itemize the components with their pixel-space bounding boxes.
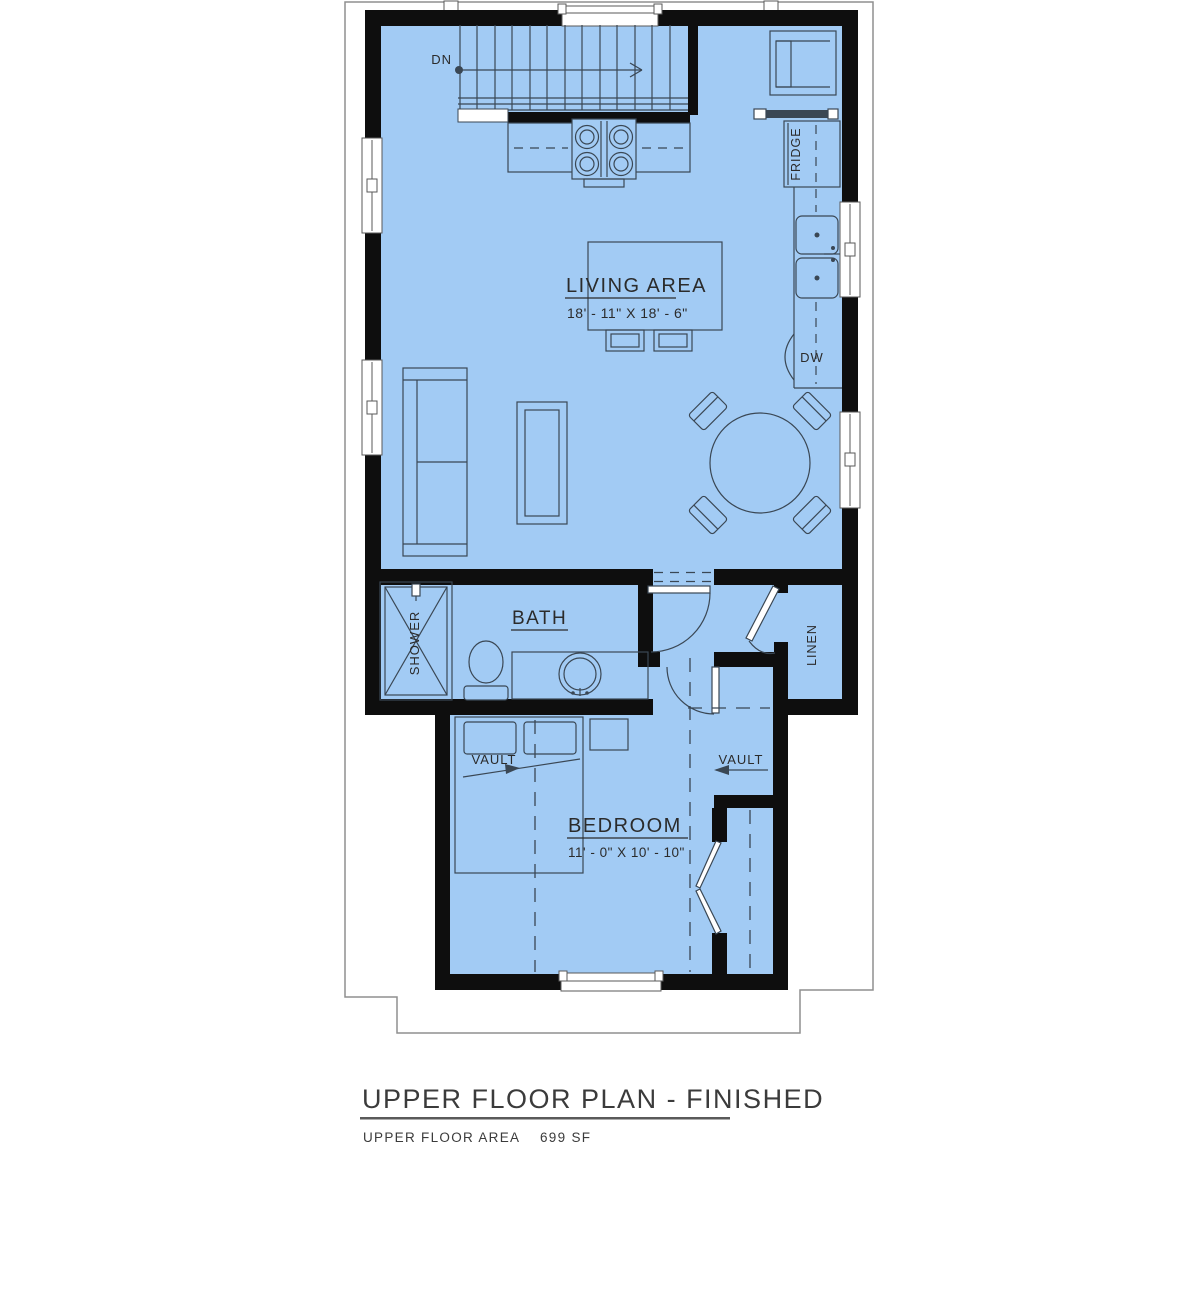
bedroom-label: BEDROOM [568,815,682,837]
bath-label: BATH [512,608,567,629]
dining-set [688,391,832,535]
vault-left-label: VAULT [472,752,517,767]
counter-half-wall [754,109,838,119]
floor-plan-canvas: DN [0,0,1200,1308]
stair-landing [458,109,508,122]
dining-table [710,413,810,513]
refrigerator: FRIDGE [784,121,840,187]
title-block: UPPER FLOOR PLAN - FINISHED UPPER FLOOR … [360,1084,824,1145]
window-top [558,4,662,26]
floor-area-value: 699 SF [540,1130,591,1145]
dishwasher-label: DW [800,350,824,365]
stairs-down-label: DN [431,52,452,67]
roof-notch-right [764,1,778,11]
window-right-lower [840,412,860,508]
window-left-upper [362,138,382,233]
window-bottom [559,971,663,991]
shower-head [412,584,420,596]
living-area-dimensions: 18' - 11" X 18' - 6" [567,305,688,321]
floor-area-label: UPPER FLOOR AREA [363,1130,520,1145]
vault-right-label: VAULT [719,752,764,767]
living-area-label: LIVING AREA [566,275,707,297]
shower-label: SHOWER [407,611,422,676]
fridge-label: FRIDGE [789,127,803,180]
roof-notch-left [444,1,458,11]
window-left-lower [362,360,382,455]
linen-label: LINEN [805,624,819,666]
plan-title: UPPER FLOOR PLAN - FINISHED [362,1084,824,1114]
bedroom-dimensions: 11' - 0" X 10' - 10" [568,845,685,860]
title-underline [360,1117,730,1120]
window-right-upper [840,202,860,297]
range-stove [572,119,636,187]
